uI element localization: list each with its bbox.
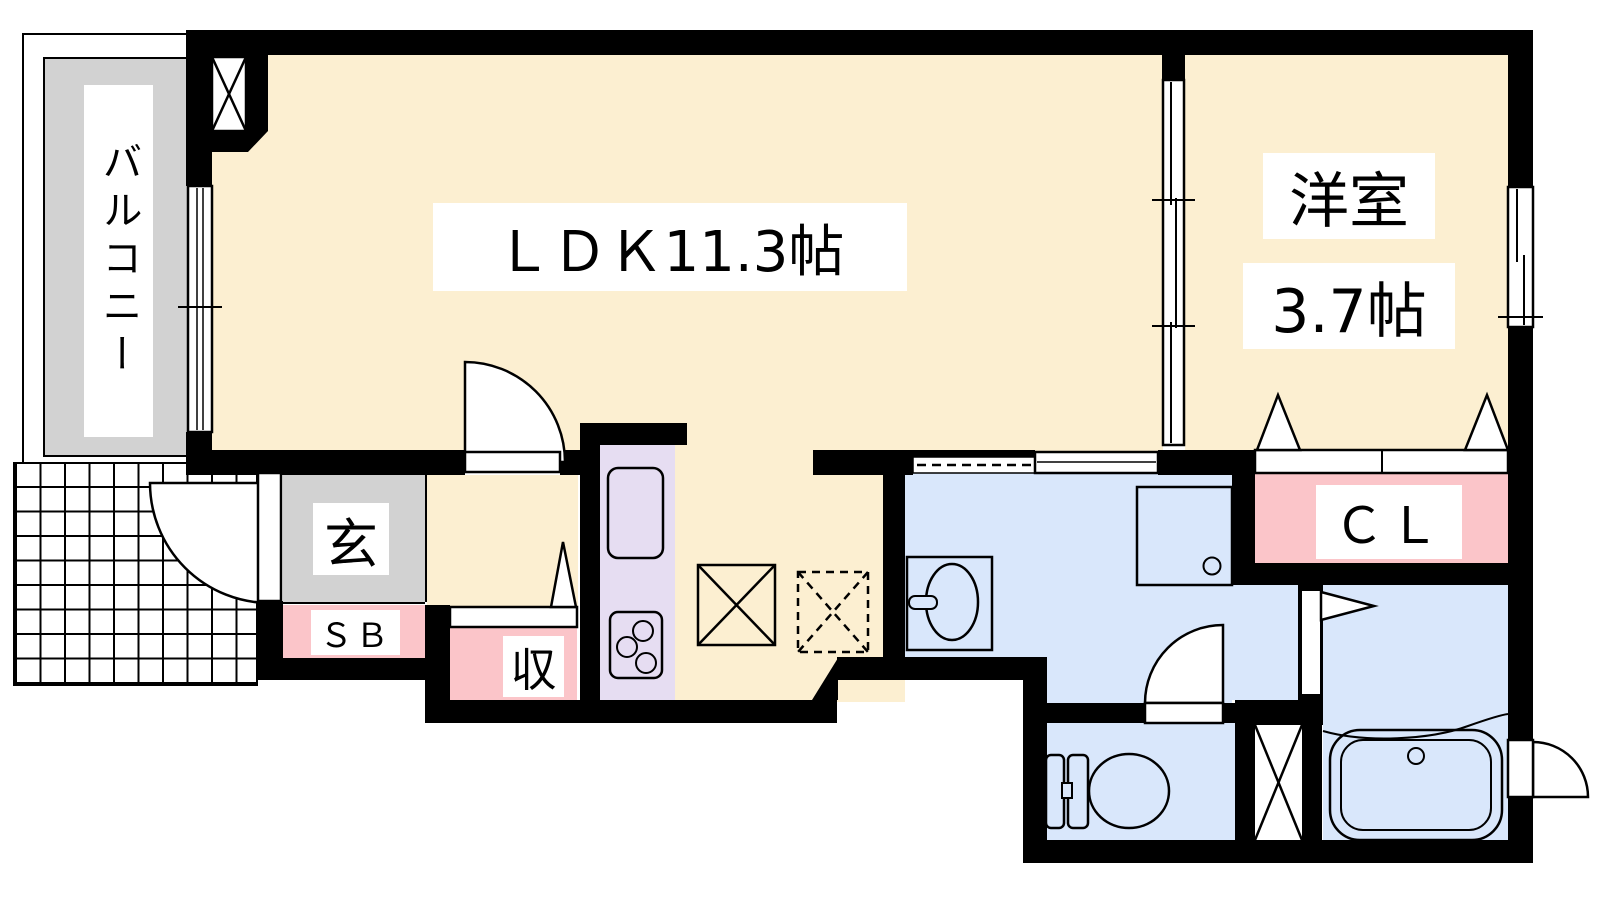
western-room-size-label: 3.7帖: [1243, 263, 1455, 349]
balcony-window-icon: [178, 186, 222, 432]
refrigerator-space-icon: [698, 565, 775, 645]
kitchen-sink-icon: [608, 468, 663, 558]
bathtub-icon: [1323, 714, 1508, 840]
pocket-sliding-door-icon: [913, 450, 1158, 473]
closet-label: ＣＬ: [1316, 485, 1462, 559]
ldk-door-swing-icon: [465, 362, 565, 472]
entrance-door-swing-icon: [150, 473, 281, 603]
pipe-space-icon: [1255, 725, 1302, 840]
toilet-door-swing-icon: [1145, 625, 1223, 723]
toilet-icon: [1046, 754, 1169, 828]
symbols-layer: [0, 0, 1600, 900]
bedroom-window-icon: [1498, 187, 1543, 327]
shaft-x-icon: [212, 57, 268, 152]
washing-machine-pan-icon: [1137, 487, 1232, 585]
washbasin-icon: [907, 557, 992, 650]
storage-label: 収: [503, 636, 564, 697]
bath-folding-door-icon: [1301, 590, 1374, 695]
closet-folding-door-icon: [1255, 395, 1508, 473]
shoe-box-label: ＳＢ: [311, 610, 400, 655]
genkan-label: 玄: [313, 503, 389, 575]
floor-plan: バルコニー ＬＤＫ11.3帖 洋室 3.7帖 玄 ＳＢ 収 ＣＬ: [0, 0, 1600, 900]
storage-door-icon: [450, 542, 577, 627]
stove-icon: [610, 612, 662, 678]
partition-window-icon: [1152, 80, 1195, 445]
washer-space-dashed-icon: [798, 572, 868, 652]
ldk-label: ＬＤＫ11.3帖: [433, 203, 907, 291]
western-room-label: 洋室: [1263, 153, 1435, 239]
wall-bevel: [812, 658, 838, 700]
balcony-label: バルコニー: [84, 85, 153, 437]
bath-outside-door-swing-icon: [1508, 740, 1588, 797]
